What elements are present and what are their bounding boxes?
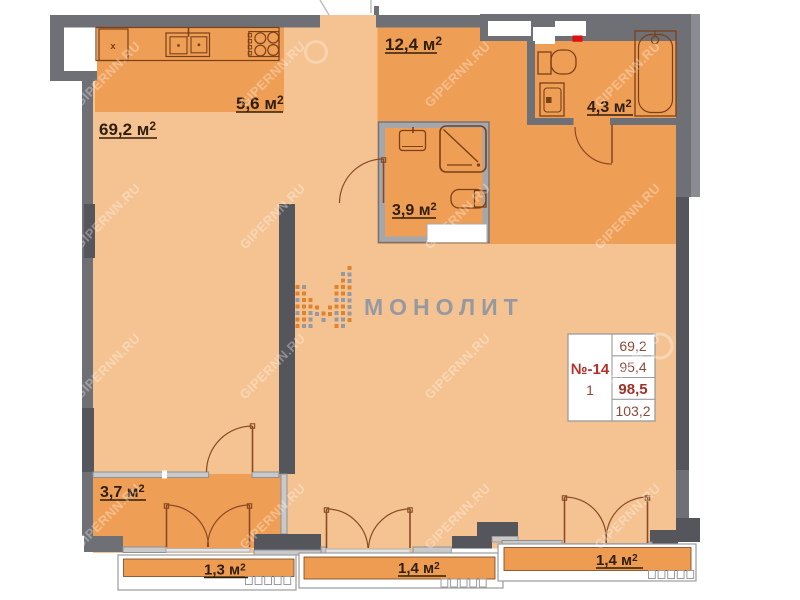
svg-text:x: x — [110, 41, 116, 52]
svg-text:№-14: №-14 — [571, 361, 610, 378]
svg-text:1,4 м2: 1,4 м2 — [398, 560, 440, 577]
svg-text:69,2 м2: 69,2 м2 — [99, 119, 156, 139]
svg-text:12,4 м2: 12,4 м2 — [385, 34, 442, 54]
svg-text:103,2: 103,2 — [615, 403, 650, 419]
svg-text:МОНОЛИТ: МОНОЛИТ — [364, 294, 524, 320]
svg-text:3,9 м2: 3,9 м2 — [392, 201, 437, 219]
svg-text:98,5: 98,5 — [618, 381, 647, 398]
svg-text:1,3 м2: 1,3 м2 — [204, 562, 246, 579]
svg-text:1,4 м2: 1,4 м2 — [596, 552, 638, 569]
